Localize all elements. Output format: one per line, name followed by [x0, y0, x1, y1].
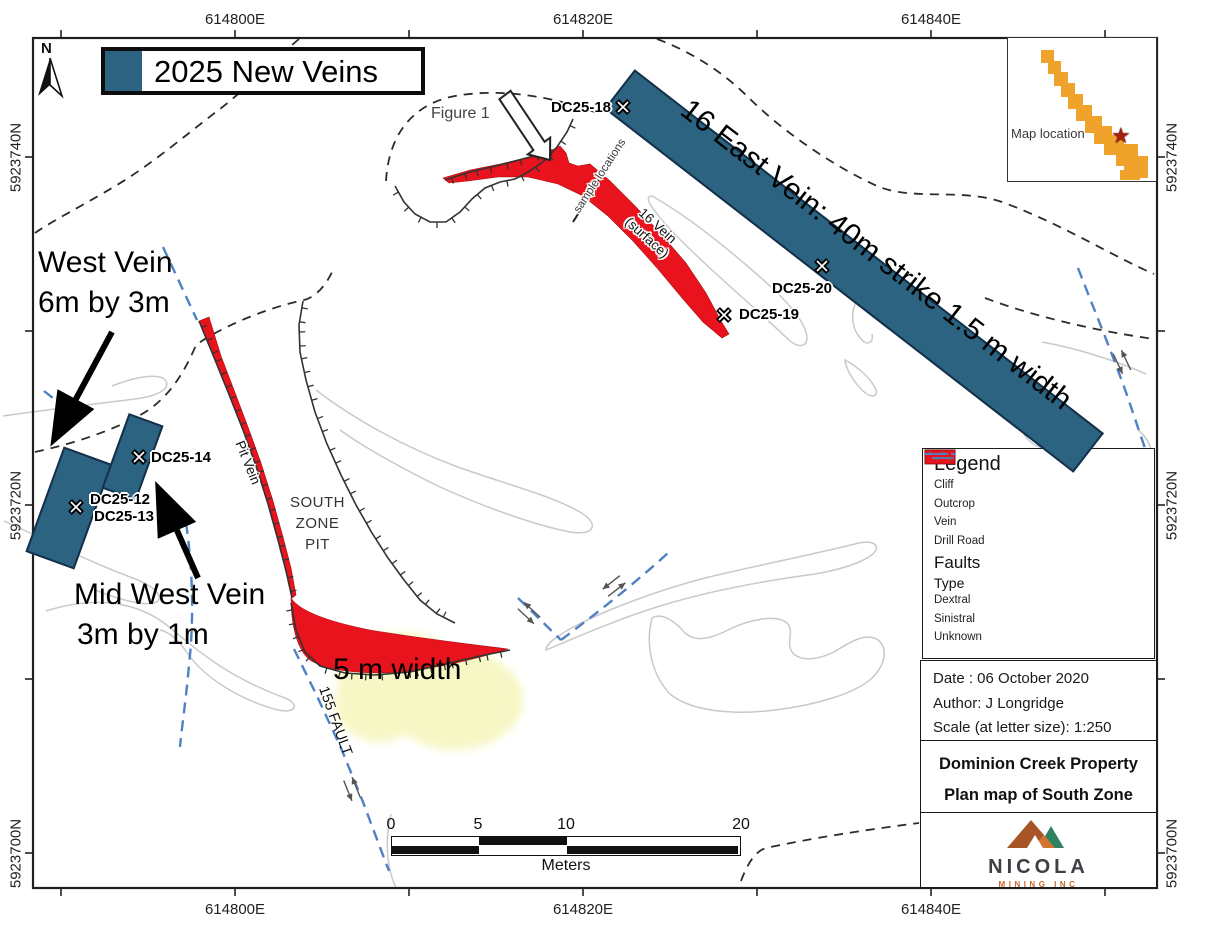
legend-item-unknown: Unknown [934, 628, 1154, 647]
grid-label-top-614820e: 614820E [553, 11, 613, 28]
scale-tick-10: 10 [557, 816, 575, 834]
map-scale: Scale (at letter size): 1:250 [933, 716, 1156, 741]
drillhole-marker-dc25-20 [813, 257, 831, 275]
province-shape [1008, 38, 1155, 180]
scale-tick-5: 5 [474, 816, 483, 834]
grid-label-top-614840e: 614840E [901, 11, 961, 28]
legend-item-vein: Vein [934, 513, 1154, 532]
scale-tick-20: 20 [732, 816, 750, 834]
figure1-label: Figure 1 [431, 105, 490, 123]
legend-faults-title: Faults [934, 553, 1154, 573]
drillhole-label-dc25-19: DC25-19 [739, 306, 799, 323]
legend-item-cliff: Cliff [934, 476, 1154, 495]
legend-item-sinistral: Sinistral [934, 610, 1154, 629]
drillhole-label-dc25-14: DC25-14 [151, 449, 211, 466]
scale-bar: 0 5 10 20 Meters [391, 816, 741, 875]
map-date: Date : 06 October 2020 [933, 667, 1156, 692]
mid-west-vein-annotation-line2: 3m by 1m [77, 618, 209, 652]
legend-item-outcrop: Outcrop [934, 495, 1154, 514]
grid-label-left-5923740n: 5923740N [8, 121, 25, 195]
new-veins-legend: 2025 New Veins [101, 47, 425, 95]
grid-label-bottom-614840e: 614840E [901, 901, 961, 918]
info-panel: Date : 06 October 2020 Author: J Longrid… [920, 660, 1157, 742]
location-star-icon: ★ [1111, 123, 1131, 149]
legend-item-dextral: Dextral [934, 591, 1154, 610]
scale-tick-0: 0 [387, 816, 396, 834]
grid-label-right-5923700n: 5923700N [1164, 817, 1181, 891]
legend-title: Legend [934, 453, 1154, 476]
new-veins-label: 2025 New Veins [142, 51, 388, 91]
drillhole-label-dc25-12: DC25-12 [90, 491, 150, 508]
grid-label-left-5923700n: 5923700N [8, 817, 25, 891]
title-panel: Dominion Creek Property Plan map of Sout… [920, 740, 1157, 814]
mid-west-vein-annotation-line1: Mid West Vein [74, 578, 265, 612]
figure1-arrow-icon [499, 91, 550, 160]
west-vein-annotation-line1: West Vein [38, 246, 173, 280]
new-vein-swatch [105, 51, 142, 91]
width-5m-annotation: 5 m width [333, 653, 461, 687]
drillhole-marker-dc25-18 [614, 98, 632, 116]
map-title: Plan map of South Zone [921, 787, 1156, 803]
scale-bar-graphic [391, 836, 741, 856]
drillhole-label-dc25-13: DC25-13 [94, 508, 154, 525]
inset-label: Map location [1011, 126, 1085, 141]
legend-panel: Legend Cliff Outcrop Vein Drill Road Fau… [922, 448, 1155, 659]
grid-label-top-614800e: 614800E [205, 11, 265, 28]
drillhole-marker-dc25-19 [715, 306, 733, 324]
grid-label-right-5923740n: 5923740N [1164, 121, 1181, 195]
drillhole-marker-dc25-12-13 [67, 498, 85, 516]
west-vein-annotation-line2: 6m by 3m [38, 286, 170, 320]
north-label: N [41, 40, 52, 57]
plan-map-figure: 2025 New Veins Map location ★ Legend Cli… [0, 0, 1213, 940]
north-arrow-icon [38, 58, 62, 96]
scale-bar-unit: Meters [391, 857, 741, 875]
logo-subtitle: MINING INC [921, 880, 1156, 889]
grid-label-bottom-614820e: 614820E [553, 901, 613, 918]
unknown-fault-symbol-icon [923, 449, 957, 459]
drillhole-marker-dc25-14 [130, 448, 148, 466]
grid-label-left-5923720n: 5923720N [8, 469, 25, 543]
logo-panel: NICOLA MINING INC [920, 812, 1157, 888]
legend-type-title: Type [934, 575, 1154, 591]
south-zone-pit-label: SOUTH ZONE PIT [270, 492, 365, 555]
legend-item-drill-road: Drill Road [934, 532, 1154, 551]
map-location-inset[interactable]: Map location ★ [1007, 37, 1157, 182]
grid-label-right-5923720n: 5923720N [1164, 469, 1181, 543]
map-author: Author: J Longridge [933, 692, 1156, 717]
scale-bar-numbers: 0 5 10 20 [391, 816, 741, 836]
grid-label-bottom-614800e: 614800E [205, 901, 265, 918]
nicola-logo-icon [1004, 816, 1074, 850]
logo-name: NICOLA [921, 856, 1156, 879]
drillhole-label-dc25-18: DC25-18 [545, 99, 611, 116]
drillhole-label-dc25-20: DC25-20 [772, 280, 832, 297]
property-title: Dominion Creek Property [921, 756, 1156, 772]
